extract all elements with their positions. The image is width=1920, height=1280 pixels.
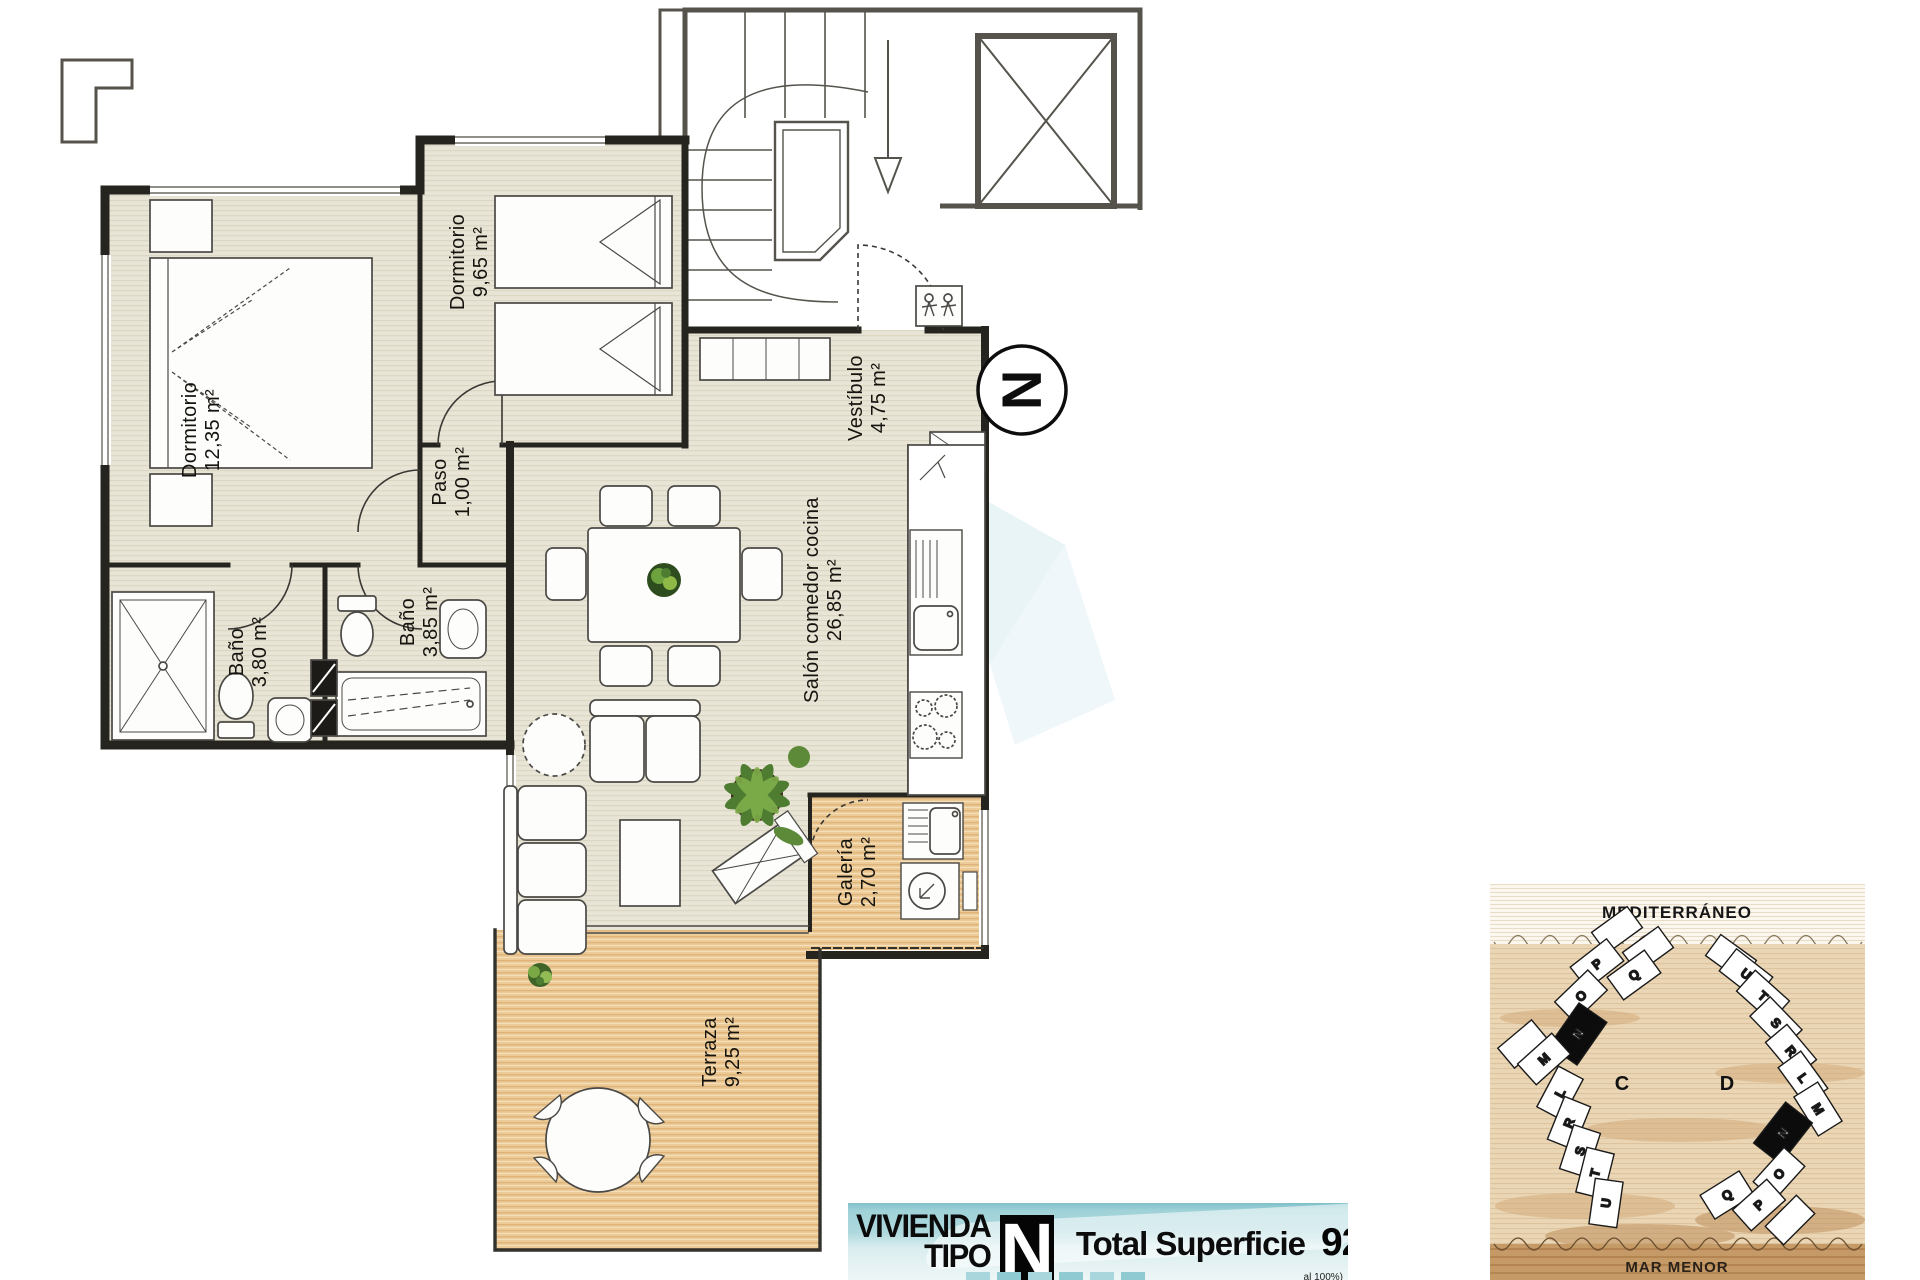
window-dorm9-top (455, 134, 605, 146)
cluster-label-C: C (1615, 1073, 1629, 1095)
terrace-set (534, 1088, 664, 1192)
plant-terraza (528, 963, 552, 987)
north-symbol: N (978, 346, 1066, 434)
window-galeria-right (979, 810, 991, 945)
label-galeria: Galería2,70 m² (835, 837, 880, 908)
floor-plan-page: Dormitorio12,35 m² Dormitorio9,65 m² Pas… (0, 0, 1920, 1280)
label-dormitorio-9: Dormitorio9,65 m² (447, 214, 492, 310)
type-letter-box: N (1000, 1215, 1053, 1280)
banner-total: Total Superficie 92,43 m² (1076, 1221, 1348, 1265)
banner-footnote-fragment: al 100%) (1304, 1272, 1343, 1280)
elevator (940, 36, 1140, 206)
total-superficie-label: Total Superficie (1076, 1225, 1305, 1263)
sea-label-mar-menor: MAR MENOR (1625, 1259, 1728, 1276)
banner-vivienda-tipo: VIVIENDA TIPO (856, 1212, 990, 1272)
north-letter: N (991, 370, 1054, 410)
window-dorm12-top (150, 184, 400, 196)
neighbor-wall-fragment (62, 60, 132, 142)
banner-content: VIVIENDA TIPO N Total Superficie 92,43 m… (848, 1203, 1348, 1280)
banner-word-tipo: TIPO (924, 1242, 990, 1272)
label-terraza: Terraza9,25 m² (699, 1017, 744, 1088)
plant-dining (647, 563, 681, 597)
site-map-inset: MEDITERRÁNEO MAR MENOR P Q (1490, 868, 1865, 1280)
intercom-icon (916, 286, 962, 326)
kitchen (908, 445, 985, 795)
cut-off-logo-strip (966, 1272, 1145, 1280)
type-letter: N (1000, 1215, 1053, 1280)
cluster-label-D: D (1720, 1073, 1734, 1095)
label-dormitorio-12: Dormitorio12,35 m² (179, 382, 224, 478)
type-banner: VIVIENDA TIPO N Total Superficie 92,43 m… (848, 1203, 1348, 1280)
label-vestibulo: Vestíbulo4,75 m² (845, 355, 890, 441)
window-dorm12-left (99, 255, 111, 465)
total-superficie-value: 92,43 m² (1321, 1221, 1348, 1265)
